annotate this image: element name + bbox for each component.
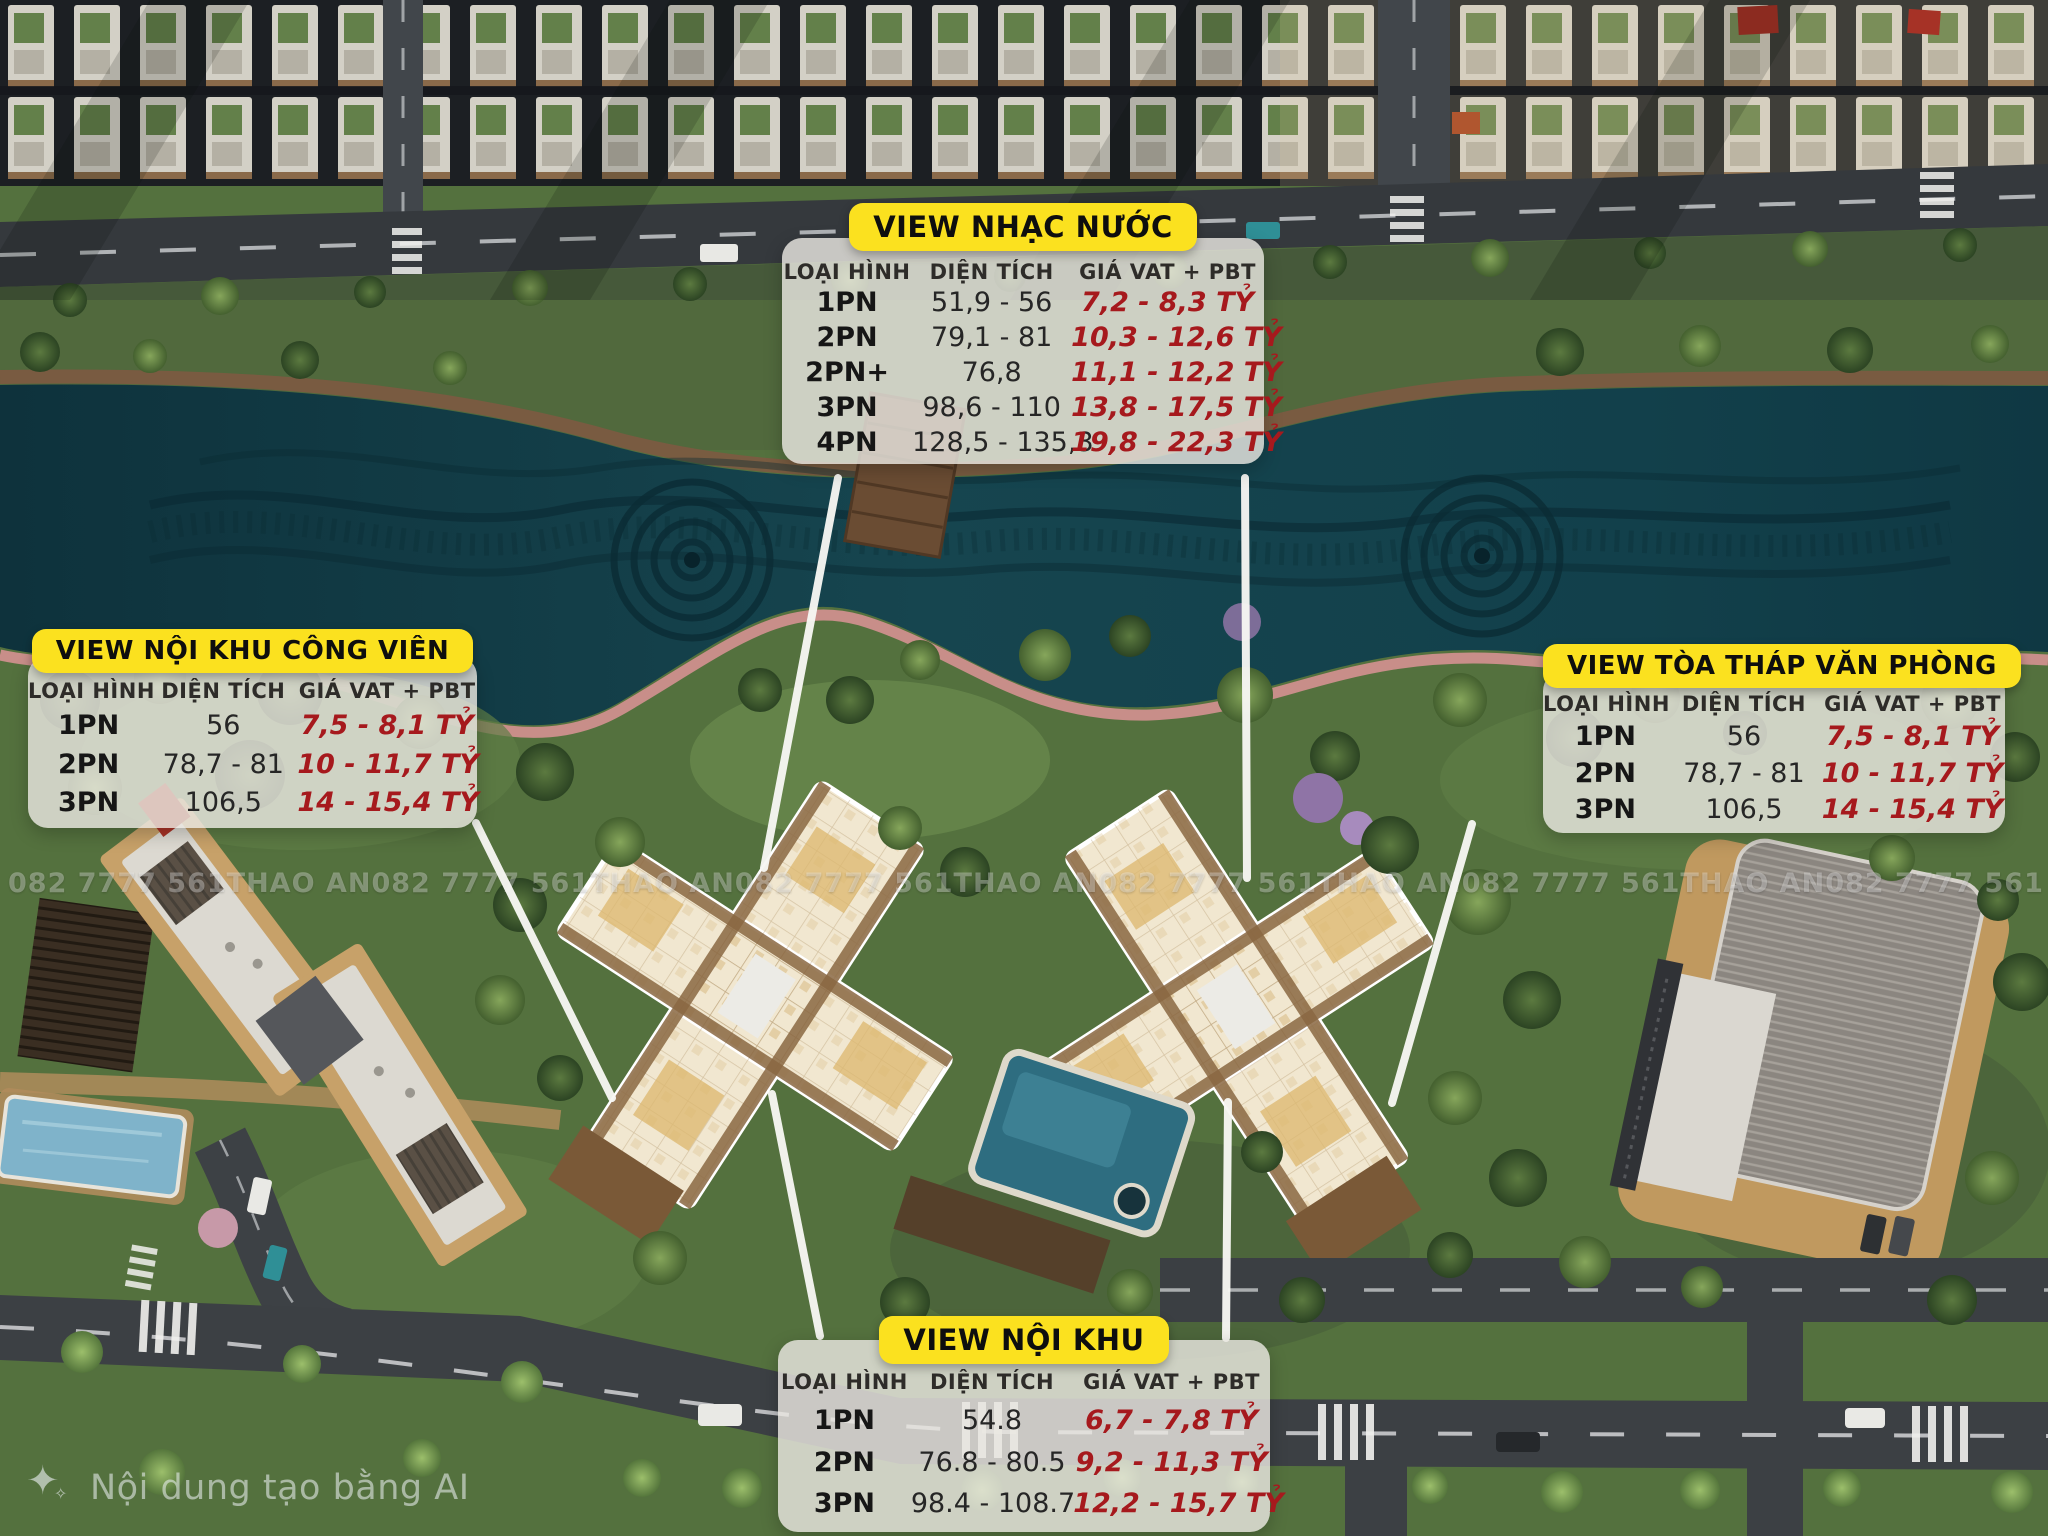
unit-area: 54.8 — [911, 1407, 1073, 1435]
unit-price: 10 - 11,7 TỶ — [1820, 760, 2005, 788]
unit-area: 79,1 - 81 — [912, 324, 1071, 352]
unit-type: 2PN — [778, 1449, 911, 1477]
unit-area: 56 — [149, 712, 297, 740]
unit-price: 6,7 - 7,8 TỶ — [1073, 1407, 1270, 1435]
table-row: 3PN 98.4 - 108.7 12,2 - 15,7 TỶ — [778, 1490, 1270, 1518]
price-table-fountain: LOẠI HÌNH DIỆN TÍCH GIÁ VAT + PBT 1PN 51… — [782, 238, 1264, 464]
table-row: 3PN 106,5 14 - 15,4 TỶ — [1543, 796, 2005, 824]
unit-price: 12,2 - 15,7 TỶ — [1073, 1490, 1270, 1518]
table-header-row: LOẠI HÌNH DIỆN TÍCH GIÁ VAT + PBT — [28, 680, 477, 702]
table-row: 2PN 76.8 - 80.5 9,2 - 11,3 TỶ — [778, 1449, 1270, 1477]
unit-area: 56 — [1668, 723, 1820, 751]
callout-view-noi-khu-cong-vien: VIEW NỘI KHU CÔNG VIÊN LOẠI HÌNH DIỆN TÍ… — [28, 629, 477, 828]
unit-area: 128,5 - 135,3 — [912, 429, 1071, 457]
unit-type: 3PN — [28, 789, 149, 817]
table-row: 1PN 54.8 6,7 - 7,8 TỶ — [778, 1407, 1270, 1435]
column-header-price: GIÁ VAT + PBT — [1071, 261, 1264, 283]
unit-price: 14 - 15,4 TỶ — [297, 789, 477, 817]
table-row: 1PN 51,9 - 56 7,2 - 8,3 TỶ — [782, 289, 1264, 317]
table-title-badge: VIEW NHẠC NƯỚC — [849, 203, 1197, 251]
column-header-area: DIỆN TÍCH — [149, 680, 297, 702]
unit-area: 76,8 — [912, 359, 1071, 387]
callout-view-toa-thap-van-phong: VIEW TÒA THÁP VĂN PHÒNG LOẠI HÌNH DIỆN T… — [1543, 644, 2005, 833]
unit-price: 10,3 - 12,6 TỶ — [1071, 324, 1264, 352]
table-header-row: LOẠI HÌNH DIỆN TÍCH GIÁ VAT + PBT — [778, 1371, 1270, 1393]
unit-type: 1PN — [782, 289, 912, 317]
table-row: 3PN 106,5 14 - 15,4 TỶ — [28, 789, 477, 817]
table-title-badge: VIEW TÒA THÁP VĂN PHÒNG — [1543, 644, 2021, 688]
unit-area: 76.8 - 80.5 — [911, 1449, 1073, 1477]
unit-area: 98,6 - 110 — [912, 394, 1071, 422]
unit-type: 4PN — [782, 429, 912, 457]
unit-type: 2PN+ — [782, 359, 912, 387]
unit-type: 3PN — [778, 1490, 911, 1518]
column-header-type: LOẠI HÌNH — [28, 680, 149, 702]
column-header-price: GIÁ VAT + PBT — [1073, 1371, 1270, 1393]
unit-area: 78,7 - 81 — [149, 751, 297, 779]
table-row: 2PN 79,1 - 81 10,3 - 12,6 TỶ — [782, 324, 1264, 352]
unit-area: 51,9 - 56 — [912, 289, 1071, 317]
unit-area: 106,5 — [1668, 796, 1820, 824]
unit-price: 7,5 - 8,1 TỶ — [297, 712, 477, 740]
table-title-badge: VIEW NỘI KHU CÔNG VIÊN — [32, 629, 474, 673]
table-row: 3PN 98,6 - 110 13,8 - 17,5 TỶ — [782, 394, 1264, 422]
unit-price: 10 - 11,7 TỶ — [297, 751, 477, 779]
unit-price: 13,8 - 17,5 TỶ — [1071, 394, 1264, 422]
table-header-row: LOẠI HÌNH DIỆN TÍCH GIÁ VAT + PBT — [782, 261, 1264, 283]
column-header-price: GIÁ VAT + PBT — [1820, 693, 2005, 715]
unit-type: 3PN — [1543, 796, 1668, 824]
unit-type: 1PN — [28, 712, 149, 740]
unit-price: 19,8 - 22,3 TỶ — [1071, 429, 1264, 457]
price-table-inner: LOẠI HÌNH DIỆN TÍCH GIÁ VAT + PBT 1PN 54… — [778, 1340, 1270, 1532]
unit-type: 2PN — [28, 751, 149, 779]
unit-type: 2PN — [1543, 760, 1668, 788]
callout-view-nhac-nuoc: VIEW NHẠC NƯỚC LOẠI HÌNH DIỆN TÍCH GIÁ V… — [782, 203, 1264, 464]
column-header-type: LOẠI HÌNH — [782, 261, 912, 283]
column-header-price: GIÁ VAT + PBT — [297, 680, 477, 702]
unit-area: 78,7 - 81 — [1668, 760, 1820, 788]
unit-area: 98.4 - 108.7 — [911, 1490, 1073, 1518]
table-row: 1PN 56 7,5 - 8,1 TỶ — [1543, 723, 2005, 751]
unit-type: 1PN — [778, 1407, 911, 1435]
callout-view-noi-khu: VIEW NỘI KHU LOẠI HÌNH DIỆN TÍCH GIÁ VAT… — [778, 1316, 1270, 1532]
unit-type: 1PN — [1543, 723, 1668, 751]
column-header-area: DIỆN TÍCH — [911, 1371, 1073, 1393]
table-row: 1PN 56 7,5 - 8,1 TỶ — [28, 712, 477, 740]
unit-price: 11,1 - 12,2 TỶ — [1071, 359, 1264, 387]
column-header-area: DIỆN TÍCH — [912, 261, 1071, 283]
unit-price: 7,2 - 8,3 TỶ — [1071, 289, 1264, 317]
unit-price: 14 - 15,4 TỶ — [1820, 796, 2005, 824]
column-header-type: LOẠI HÌNH — [778, 1371, 911, 1393]
table-row: 2PN+ 76,8 11,1 - 12,2 TỶ — [782, 359, 1264, 387]
price-table-park: LOẠI HÌNH DIỆN TÍCH GIÁ VAT + PBT 1PN 56… — [28, 656, 477, 828]
table-row: 2PN 78,7 - 81 10 - 11,7 TỶ — [1543, 760, 2005, 788]
price-table-office: LOẠI HÌNH DIỆN TÍCH GIÁ VAT + PBT 1PN 56… — [1543, 671, 2005, 833]
unit-area: 106,5 — [149, 789, 297, 817]
masterplan-poster: 082 7777 561 THAO AN 082 7777 561 THAO A… — [0, 0, 2048, 1536]
unit-type: 3PN — [782, 394, 912, 422]
unit-price: 9,2 - 11,3 TỶ — [1073, 1449, 1270, 1477]
column-header-area: DIỆN TÍCH — [1668, 693, 1820, 715]
unit-price: 7,5 - 8,1 TỶ — [1820, 723, 2005, 751]
table-row: 4PN 128,5 - 135,3 19,8 - 22,3 TỶ — [782, 429, 1264, 457]
table-row: 2PN 78,7 - 81 10 - 11,7 TỶ — [28, 751, 477, 779]
table-title-badge: VIEW NỘI KHU — [879, 1316, 1168, 1364]
table-header-row: LOẠI HÌNH DIỆN TÍCH GIÁ VAT + PBT — [1543, 693, 2005, 715]
column-header-type: LOẠI HÌNH — [1543, 693, 1668, 715]
unit-type: 2PN — [782, 324, 912, 352]
